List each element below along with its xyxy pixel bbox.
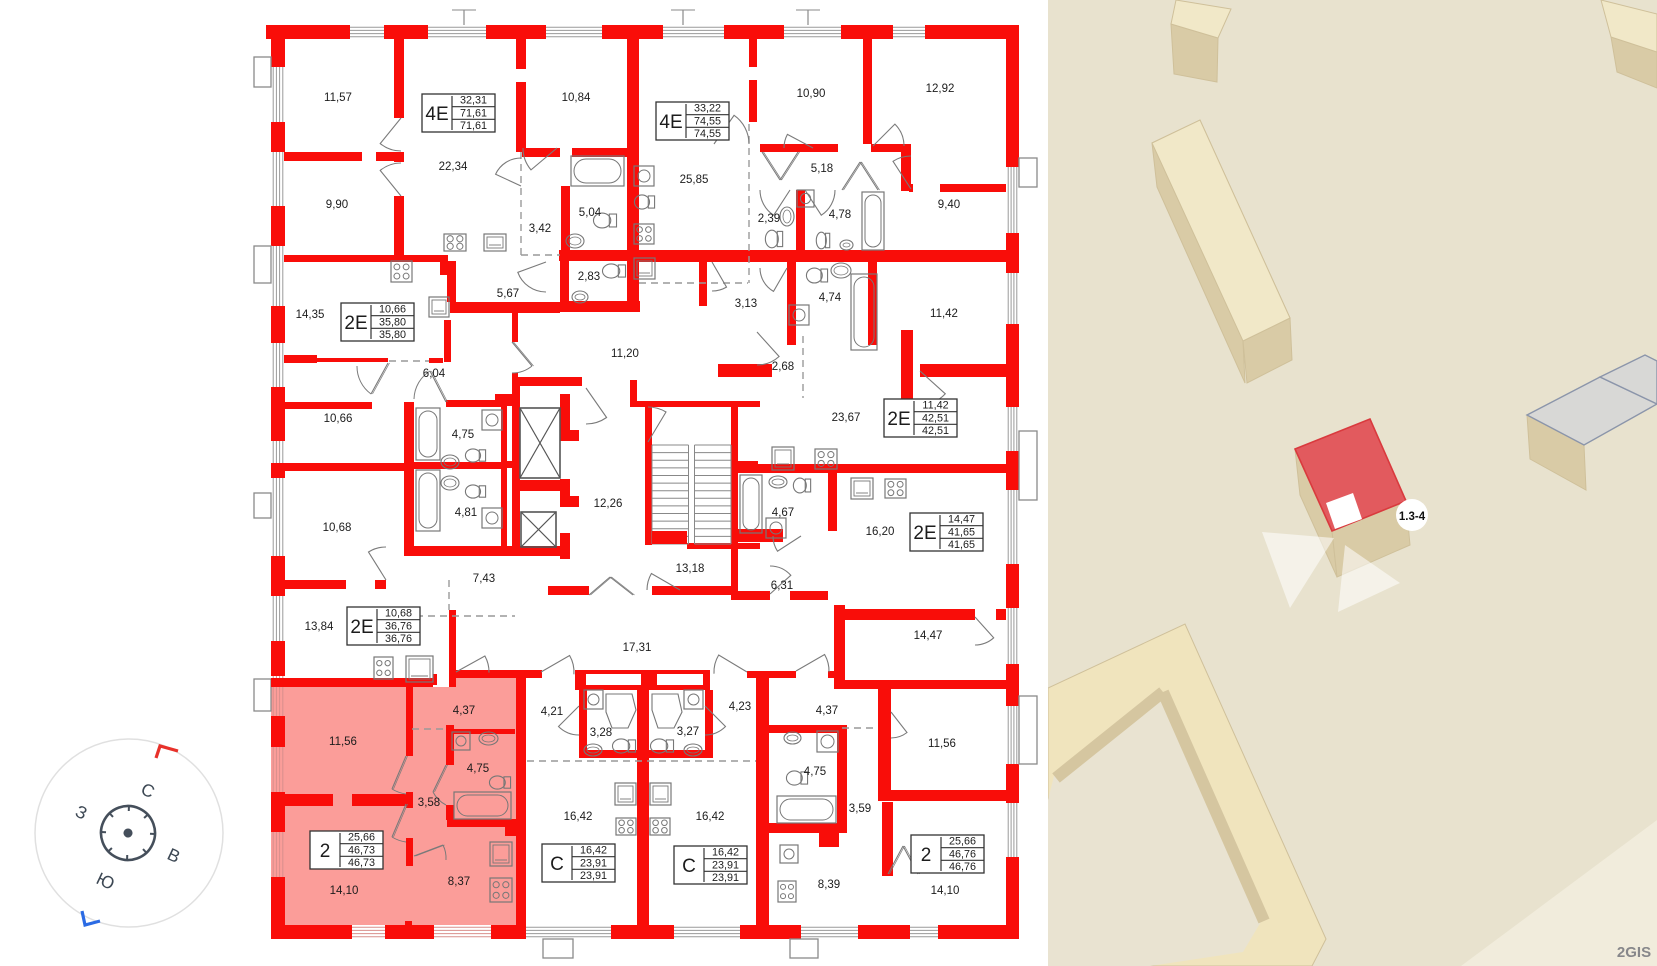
svg-text:2Е: 2Е	[350, 617, 373, 638]
svg-text:2Е: 2Е	[913, 523, 936, 544]
svg-text:23,91: 23,91	[580, 857, 607, 869]
svg-text:10,90: 10,90	[797, 88, 826, 100]
svg-text:16,42: 16,42	[712, 847, 739, 859]
svg-text:23,91: 23,91	[712, 859, 739, 871]
svg-text:3,58: 3,58	[418, 797, 440, 809]
svg-text:8,39: 8,39	[818, 879, 840, 891]
svg-text:5,18: 5,18	[811, 163, 833, 175]
svg-text:33,22: 33,22	[694, 103, 721, 115]
svg-text:42,51: 42,51	[922, 412, 949, 424]
svg-text:4,74: 4,74	[819, 292, 842, 304]
svg-text:41,65: 41,65	[948, 526, 975, 538]
svg-text:10,68: 10,68	[323, 522, 352, 534]
svg-text:10,66: 10,66	[324, 413, 353, 425]
svg-text:2,68: 2,68	[772, 361, 794, 373]
svg-text:4,81: 4,81	[455, 507, 477, 519]
svg-text:4,67: 4,67	[772, 507, 794, 519]
svg-text:9,90: 9,90	[326, 199, 348, 211]
svg-text:2Е: 2Е	[344, 313, 367, 334]
svg-text:1.3-4: 1.3-4	[1399, 511, 1426, 523]
svg-text:23,67: 23,67	[832, 412, 861, 424]
svg-text:46,76: 46,76	[949, 848, 976, 860]
svg-text:25,66: 25,66	[949, 836, 976, 848]
svg-text:3,13: 3,13	[735, 298, 757, 310]
svg-text:46,73: 46,73	[348, 844, 375, 856]
svg-text:2: 2	[921, 845, 932, 866]
svg-text:2GIS: 2GIS	[1617, 944, 1651, 961]
svg-text:11,56: 11,56	[329, 736, 357, 748]
svg-text:25,85: 25,85	[680, 174, 709, 186]
svg-text:46,73: 46,73	[348, 857, 375, 869]
svg-text:41,65: 41,65	[948, 539, 975, 551]
svg-text:9,40: 9,40	[938, 199, 960, 211]
svg-text:4,75: 4,75	[467, 763, 489, 775]
svg-text:35,80: 35,80	[379, 329, 406, 341]
svg-text:36,76: 36,76	[385, 620, 412, 632]
svg-text:12,92: 12,92	[926, 83, 955, 95]
svg-text:42,51: 42,51	[922, 425, 949, 437]
svg-text:71,61: 71,61	[460, 107, 487, 119]
svg-text:4,21: 4,21	[541, 706, 563, 718]
svg-text:35,80: 35,80	[379, 316, 406, 328]
svg-text:14,10: 14,10	[330, 885, 359, 897]
svg-text:С: С	[550, 854, 564, 875]
svg-text:13,84: 13,84	[305, 621, 334, 633]
svg-text:4,75: 4,75	[804, 766, 826, 778]
svg-text:14,10: 14,10	[931, 885, 960, 897]
svg-text:3,28: 3,28	[590, 727, 612, 739]
svg-text:11,20: 11,20	[611, 348, 639, 360]
svg-text:С: С	[682, 856, 696, 877]
svg-text:4Е: 4Е	[425, 104, 448, 125]
svg-text:10,68: 10,68	[385, 608, 412, 620]
svg-text:14,47: 14,47	[948, 514, 975, 526]
svg-text:8,37: 8,37	[448, 876, 470, 888]
svg-text:36,76: 36,76	[385, 633, 412, 645]
svg-text:71,61: 71,61	[460, 120, 487, 132]
svg-text:2,83: 2,83	[578, 271, 600, 283]
svg-text:3,42: 3,42	[529, 223, 551, 235]
svg-text:4,75: 4,75	[452, 429, 474, 441]
svg-text:22,34: 22,34	[439, 161, 468, 173]
svg-text:4,37: 4,37	[816, 705, 838, 717]
svg-text:2: 2	[320, 841, 331, 862]
svg-text:2Е: 2Е	[887, 409, 910, 430]
svg-text:17,31: 17,31	[623, 642, 652, 654]
svg-text:3,59: 3,59	[849, 803, 871, 815]
svg-text:4,78: 4,78	[829, 209, 851, 221]
svg-text:16,20: 16,20	[866, 526, 895, 538]
svg-text:74,55: 74,55	[694, 115, 721, 127]
svg-text:11,42: 11,42	[922, 400, 948, 412]
svg-text:16,42: 16,42	[696, 811, 725, 823]
svg-text:6,31: 6,31	[771, 580, 793, 592]
svg-text:7,43: 7,43	[473, 573, 495, 585]
svg-text:11,57: 11,57	[324, 92, 352, 104]
svg-text:11,42: 11,42	[930, 308, 958, 320]
svg-text:25,66: 25,66	[348, 832, 375, 844]
svg-text:11,56: 11,56	[928, 738, 956, 750]
svg-text:4,23: 4,23	[729, 701, 751, 713]
svg-text:10,66: 10,66	[379, 304, 406, 316]
svg-text:2,39: 2,39	[758, 213, 780, 225]
svg-text:12,26: 12,26	[594, 498, 623, 510]
svg-text:74,55: 74,55	[694, 128, 721, 140]
svg-text:46,76: 46,76	[949, 861, 976, 873]
svg-text:5,04: 5,04	[579, 207, 602, 219]
svg-text:23,91: 23,91	[712, 872, 739, 884]
svg-text:5,67: 5,67	[497, 288, 519, 300]
svg-text:6,04: 6,04	[423, 368, 446, 380]
svg-text:14,47: 14,47	[914, 630, 943, 642]
svg-text:32,31: 32,31	[460, 95, 487, 107]
svg-text:13,18: 13,18	[676, 563, 705, 575]
svg-text:23,91: 23,91	[580, 870, 607, 882]
svg-text:16,42: 16,42	[564, 811, 593, 823]
svg-text:10,84: 10,84	[562, 92, 591, 104]
svg-text:14,35: 14,35	[296, 309, 325, 321]
svg-text:4,37: 4,37	[453, 705, 475, 717]
svg-text:4Е: 4Е	[659, 112, 682, 133]
svg-text:16,42: 16,42	[580, 845, 607, 857]
svg-text:3,27: 3,27	[677, 726, 699, 738]
